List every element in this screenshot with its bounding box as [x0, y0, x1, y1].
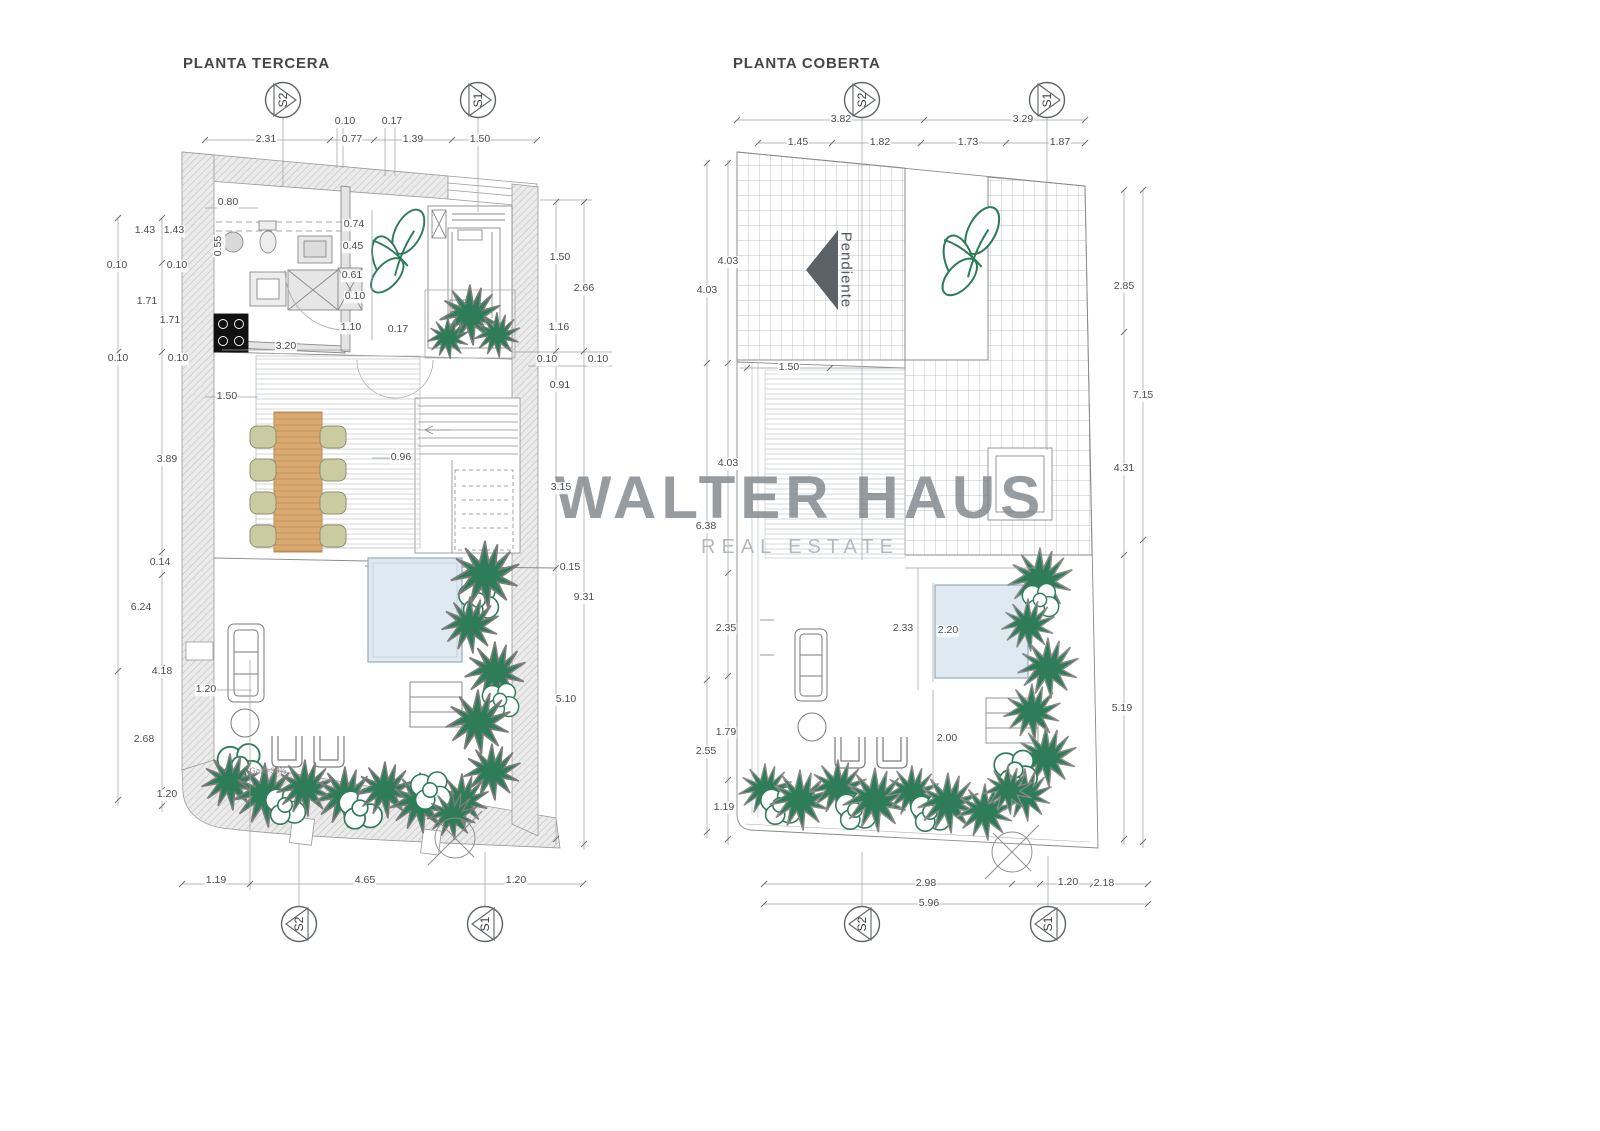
- pool-area: [368, 558, 462, 727]
- planta-tercera-drawing: [115, 118, 612, 906]
- roof-terrace-furniture: [795, 629, 907, 768]
- kitchen-fixtures: [214, 221, 362, 352]
- toilet: [260, 231, 276, 253]
- armchair: [314, 736, 344, 767]
- armchair: [877, 737, 907, 768]
- dining-area: [250, 356, 420, 552]
- planta-coberta-drawing: [704, 117, 1151, 907]
- drain-symbol: [985, 825, 1039, 879]
- floorplan-linework: [0, 0, 1600, 1131]
- armchair: [835, 737, 865, 768]
- pool-steps: [410, 682, 462, 727]
- round-table: [231, 709, 259, 737]
- plants-right-plan: [738, 548, 1078, 841]
- floorplan-sheet: WALTER HAUS REAL ESTATE PLANTA TERCERA 0…: [0, 0, 1600, 1131]
- basin: [223, 232, 243, 252]
- dining-table: [274, 412, 322, 552]
- roof-deck: [737, 362, 905, 818]
- armchair: [272, 736, 302, 767]
- round-table: [798, 713, 826, 741]
- stairs: [415, 398, 520, 553]
- pool: [368, 558, 462, 662]
- skylight: [988, 448, 1052, 520]
- stove: [214, 314, 248, 352]
